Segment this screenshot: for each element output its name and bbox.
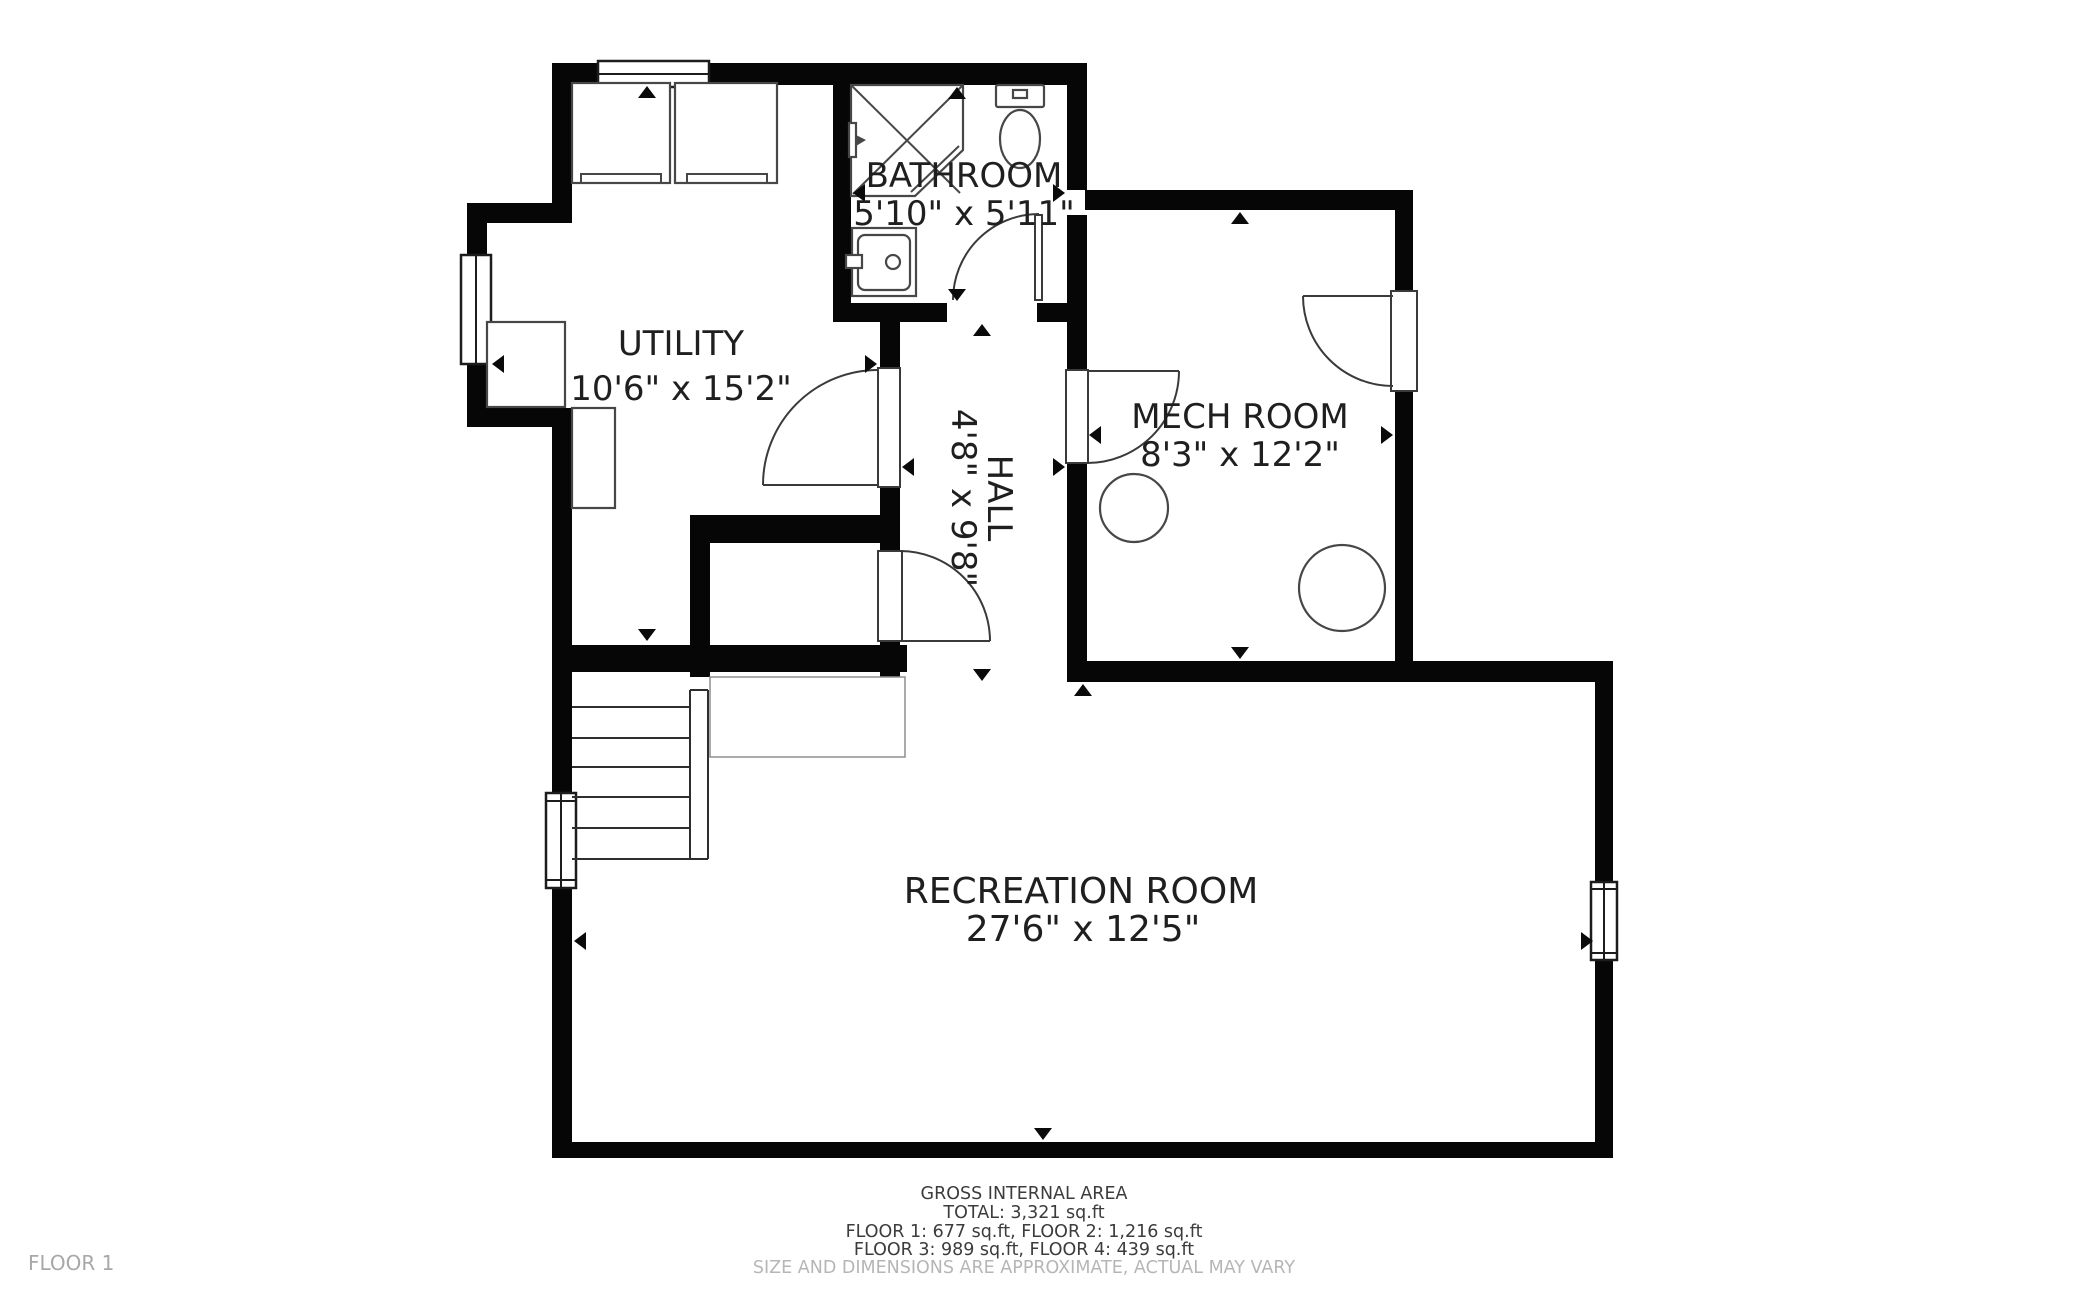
room-dims-recreation-room: 27'6" x 12'5": [966, 909, 1201, 950]
dimension-arrow: [638, 629, 656, 641]
room-dims-hall: 4'8" x 9'8": [943, 409, 983, 587]
floor-label: FLOOR 1: [28, 1251, 114, 1275]
room-label-utility: UTILITY: [618, 324, 744, 364]
footer-total: TOTAL: 3,321 sq.ft: [942, 1203, 1104, 1223]
room-label-recreation-room: RECREATION ROOM: [904, 871, 1259, 912]
water-tank-small: [1100, 474, 1168, 542]
footer: GROSS INTERNAL AREA TOTAL: 3,321 sq.ft F…: [753, 1184, 1296, 1278]
dimension-arrow: [574, 932, 586, 950]
footer-disclaimer: SIZE AND DIMENSIONS ARE APPROXIMATE, ACT…: [753, 1258, 1296, 1278]
room-label-hall: HALL: [979, 455, 1019, 542]
window-recreation-left: [546, 793, 576, 888]
landing-outline: [710, 677, 905, 757]
footer-floors-line-1: FLOOR 1: 677 sq.ft, FLOOR 2: 1,216 sq.ft: [846, 1222, 1203, 1242]
room-dims-mech-room: 8'3" x 12'2": [1140, 435, 1340, 475]
dimension-arrow: [1074, 684, 1092, 696]
utility-door-opening: [878, 368, 900, 487]
dimension-arrow: [1053, 458, 1065, 476]
mech-left-door-opening: [1066, 370, 1088, 463]
footer-heading: GROSS INTERNAL AREA: [921, 1184, 1128, 1204]
room-labels: BATHROOM 5'10" x 5'11" UTILITY 10'6" x 1…: [570, 156, 1348, 950]
closet-door-opening: [878, 551, 902, 641]
dimension-arrow: [948, 289, 966, 301]
dimension-arrow: [902, 458, 914, 476]
utility-cabinet: [572, 408, 615, 508]
footer-floors-line-2: FLOOR 3: 989 sq.ft, FLOOR 4: 439 sq.ft: [854, 1240, 1194, 1260]
floorplan-page: BATHROOM 5'10" x 5'11" UTILITY 10'6" x 1…: [0, 0, 2080, 1299]
floorplan-drawing: BATHROOM 5'10" x 5'11" UTILITY 10'6" x 1…: [0, 0, 2080, 1299]
room-label-bathroom: BATHROOM: [866, 156, 1063, 196]
dimension-arrow: [1231, 212, 1249, 224]
dimension-arrow: [1034, 1128, 1052, 1140]
room-dims-utility: 10'6" x 15'2": [570, 369, 792, 409]
room-label-mech-room: MECH ROOM: [1131, 397, 1348, 437]
room-dims-bathroom: 5'10" x 5'11": [853, 194, 1075, 234]
mech-right-door: [1303, 296, 1393, 386]
dryer-fixture: [675, 83, 777, 183]
dimension-arrow: [973, 324, 991, 336]
water-tank-large: [1299, 545, 1385, 631]
mech-right-door-opening: [1391, 291, 1417, 391]
dimension-arrow: [1381, 426, 1393, 444]
staircase: [572, 690, 708, 859]
dimension-arrow: [973, 669, 991, 681]
sink-fixture: [846, 228, 916, 296]
dimension-arrow: [1231, 647, 1249, 659]
window-recreation-right: [1591, 882, 1617, 960]
dimension-arrow: [1089, 426, 1101, 444]
